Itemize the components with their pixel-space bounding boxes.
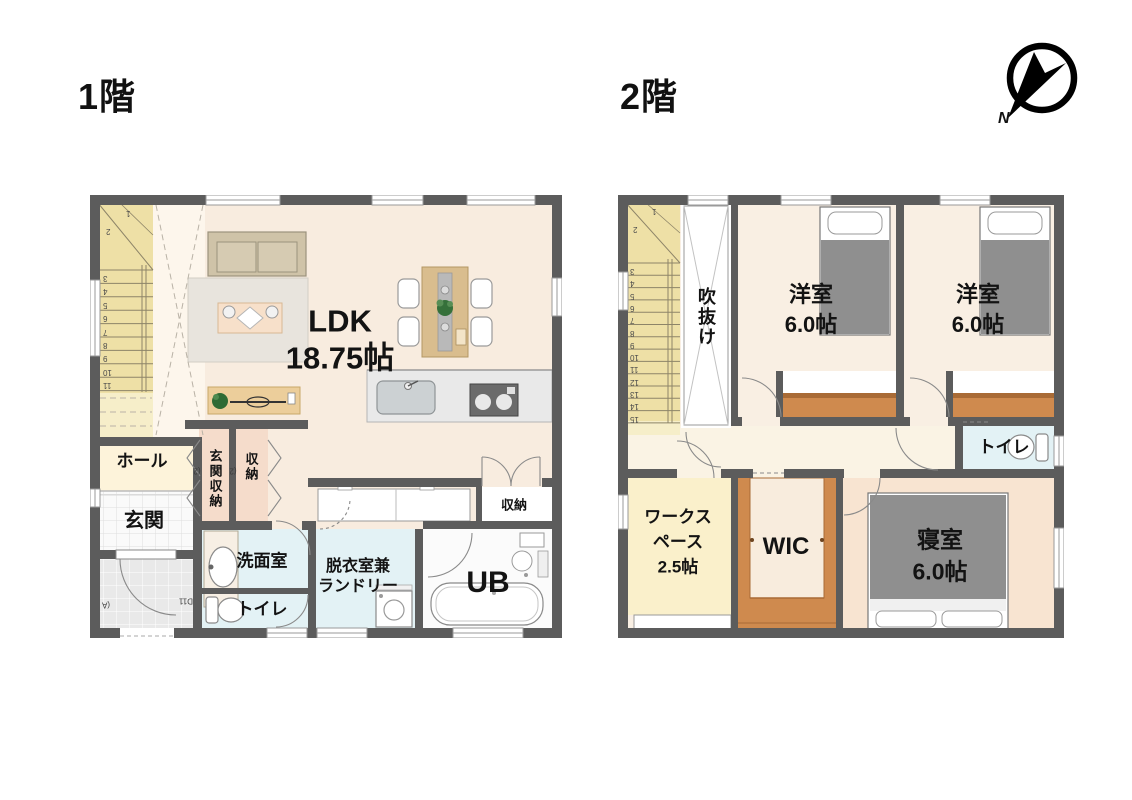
stair-step-number: 7 (103, 328, 107, 336)
stair-step-number: 5 (103, 301, 107, 309)
stair-step-number: 7 (630, 316, 634, 324)
stair-step-number: 6 (630, 304, 634, 312)
tv-board (208, 387, 300, 414)
closet2 (946, 371, 1055, 417)
porch-tile (98, 553, 193, 629)
stair-step-number: 10 (630, 353, 639, 361)
workspace-label-line1: ワークス (644, 509, 712, 526)
stair-step-number: 8 (630, 329, 634, 337)
laundry-label-line2: ランドリー (318, 579, 398, 595)
closet-right-label: 収納 (501, 499, 527, 512)
compass: N (996, 36, 1082, 128)
stove (470, 384, 518, 416)
washroom-sink (204, 531, 238, 607)
toilet2-label: トイレ (979, 439, 1030, 456)
sofa (208, 232, 306, 276)
master-size-label: 6.0帖 (913, 561, 968, 584)
washroom-label: 洗面室 (237, 553, 288, 570)
stair-step-number: 12 (630, 378, 639, 386)
compass-north-label: N (998, 110, 1010, 128)
stair-step-number: 9 (630, 341, 634, 349)
stair-step-number: 3 (103, 274, 107, 282)
door-code: (A (102, 601, 110, 610)
floor2-plan: 吹抜け 洋室 6.0帖 洋室 6.0帖 トイレ ワークス ペース 2.5帖 WI… (618, 195, 1064, 638)
entrance-label: 玄関 (124, 511, 164, 531)
floor1-title: 1階 (78, 68, 136, 120)
stair-step-number: 4 (630, 279, 634, 287)
hall-label: ホール (117, 453, 168, 470)
stair-step-number: 5 (630, 292, 634, 300)
void-label: 吹抜け (697, 287, 715, 347)
door-code: (2 (229, 467, 236, 476)
stair-step-number: 3 (630, 267, 634, 275)
western2-size-label: 6.0帖 (952, 314, 1005, 336)
unit-bath-label: UB (466, 568, 509, 598)
closet-label: 収納 (245, 452, 258, 482)
floorplan-canvas: 1階 2階 N (0, 0, 1132, 800)
door-code: (2 (193, 467, 200, 476)
wic-label: WIC (763, 535, 810, 559)
door-code: D11 (179, 597, 193, 606)
cabinet-counter (318, 486, 470, 521)
kitchen-counter (367, 370, 552, 422)
workspace-size-label: 2.5帖 (658, 559, 699, 576)
living-table (218, 303, 282, 333)
stair-step-number: 15 (630, 415, 639, 423)
stair-step-number: 13 (630, 390, 639, 398)
toilet1-label: トイレ (237, 601, 288, 618)
ldk-label: LDK (308, 306, 372, 337)
stair-step-number: 1 (126, 209, 130, 217)
stair-step-number: 2 (106, 227, 110, 235)
stair-step-number: 6 (103, 314, 107, 322)
closet1 (776, 371, 896, 417)
master-label: 寝室 (917, 529, 963, 552)
stair-step-number: 8 (103, 341, 107, 349)
stair-step-number: 11 (103, 381, 111, 389)
stair-step-number: 1 (652, 207, 656, 215)
entrance-storage-label: 玄関収納 (209, 449, 222, 509)
laundry-label-line1: 脱衣室兼 (326, 559, 390, 575)
stair-step-number: 14 (630, 402, 639, 410)
ldk-size-label: 18.75帖 (286, 343, 395, 374)
stair-step-number: 4 (103, 287, 107, 295)
western1-size-label: 6.0帖 (785, 314, 838, 336)
floor2-title: 2階 (620, 68, 678, 120)
stair-step-number: 2 (633, 225, 637, 233)
western2-label: 洋室 (956, 284, 1000, 306)
workspace-label-line2: ペース (653, 534, 703, 551)
western1-label: 洋室 (789, 284, 833, 306)
floor1-plan: LDK 18.75帖 ホール 玄関 玄関収納 収納 洗面室 トイレ 脱衣室兼 ラ… (90, 195, 562, 638)
stair-step-number: 9 (103, 354, 107, 362)
stair-step-number: 10 (103, 368, 112, 376)
stair-step-number: 11 (630, 365, 638, 373)
